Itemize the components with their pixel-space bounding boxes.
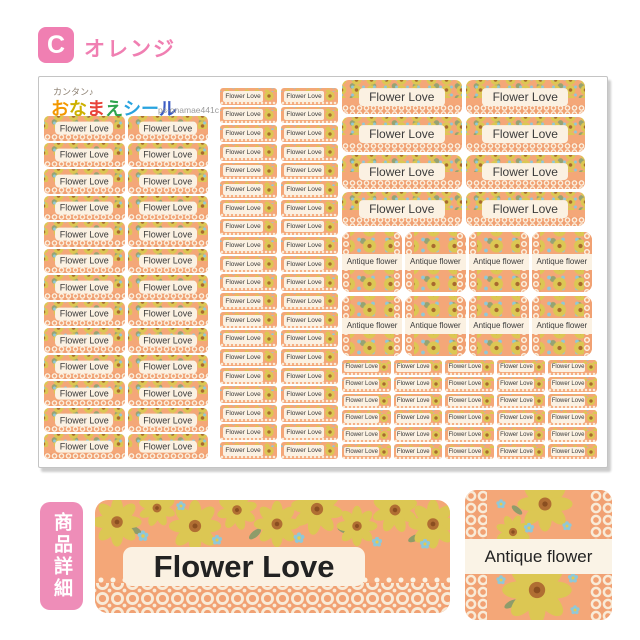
flower-icon xyxy=(380,414,388,422)
lace-band xyxy=(342,217,462,226)
name-sticker-small: Flower Love xyxy=(281,88,338,105)
sticker-label: Flower Love xyxy=(396,379,431,389)
name-sticker-mini: Flower Love xyxy=(497,377,546,392)
sticker-label: Flower Love xyxy=(223,389,263,400)
name-sticker-small: Flower Love xyxy=(220,163,277,180)
sticker-label: Antique flower xyxy=(532,254,592,270)
flower-icon xyxy=(264,241,274,251)
flower-icon xyxy=(264,371,274,381)
detail-sticker-antique-flower: Antique flower xyxy=(465,490,612,620)
name-sticker-small: Flower Love xyxy=(220,219,277,236)
sticker-block-antique: Antique flowerAntique flowerAntique flow… xyxy=(342,232,592,356)
flower-icon xyxy=(264,185,274,195)
floral-band-top xyxy=(477,296,520,318)
flower-icon xyxy=(483,363,491,371)
sticker-label: Flower Love xyxy=(223,91,263,102)
name-sticker-small: Flower Love xyxy=(220,144,277,161)
sticker-block-left: Flower LoveFlower LoveFlower LoveFlower … xyxy=(44,116,208,459)
name-sticker-mini: Flower Love xyxy=(497,360,546,375)
flower-icon xyxy=(264,408,274,418)
name-sticker-small: Flower Love xyxy=(281,386,338,403)
flower-icon xyxy=(325,203,335,213)
sticker-label: Flower Love xyxy=(55,281,113,294)
name-sticker-small: Flower Love xyxy=(281,163,338,180)
name-sticker-small: Flower Love xyxy=(220,405,277,422)
sticker-label: Flower Love xyxy=(499,363,534,373)
sticker-label: Flower Love xyxy=(284,371,324,382)
name-sticker-large: Flower Love xyxy=(466,192,586,226)
flower-icon xyxy=(264,315,274,325)
name-sticker-mini: Flower Love xyxy=(445,427,494,442)
sticker-label: Flower Love xyxy=(448,447,483,457)
sticker-label: Flower Love xyxy=(139,361,197,374)
floral-band-top xyxy=(350,232,393,254)
sticker-label: Flower Love xyxy=(551,396,586,406)
sticker-label: Flower Love xyxy=(139,334,197,347)
name-sticker-medium: Flower Love xyxy=(44,434,125,459)
sticker-label: Antique flower xyxy=(469,318,529,334)
name-sticker-medium: Flower Love xyxy=(128,222,209,247)
name-sticker-small: Flower Love xyxy=(281,349,338,366)
flower-icon xyxy=(264,278,274,288)
name-sticker-medium: Flower Love xyxy=(44,196,125,221)
floral-band-top xyxy=(414,296,457,318)
sticker-label: Flower Love xyxy=(55,148,113,161)
lace-band xyxy=(44,187,125,193)
flower-icon xyxy=(325,147,335,157)
sticker-label: Flower Love xyxy=(499,430,534,440)
lace-band xyxy=(128,400,209,406)
lace-band xyxy=(128,161,209,167)
sticker-label: Antique flower xyxy=(469,254,529,270)
name-sticker-small: Flower Love xyxy=(220,107,277,124)
lace-band xyxy=(466,105,586,114)
sticker-label: Flower Love xyxy=(448,363,483,373)
sticker-label: Flower Love xyxy=(223,240,263,251)
sticker-label: Flower Love xyxy=(284,221,324,232)
sticker-label: Flower Love xyxy=(551,447,586,457)
flower-icon xyxy=(535,397,543,405)
lace-band xyxy=(466,180,586,189)
sticker-label: Flower Love xyxy=(55,361,113,374)
name-sticker-large: Flower Love xyxy=(342,117,462,151)
lace-band xyxy=(128,134,209,140)
name-sticker-mini: Flower Love xyxy=(394,410,443,425)
flower-icon xyxy=(483,397,491,405)
name-sticker-medium: Flower Love xyxy=(128,275,209,300)
lace-band xyxy=(342,143,462,152)
flower-icon xyxy=(535,431,543,439)
sticker-label: Flower Love xyxy=(551,363,586,373)
name-sticker-medium: Flower Love xyxy=(44,302,125,327)
sticker-label: Flower Love xyxy=(223,165,263,176)
lace-band xyxy=(44,134,125,140)
sticker-label: Flower Love xyxy=(344,430,379,440)
sticker-label: Flower Love xyxy=(284,389,324,400)
name-sticker-small: Flower Love xyxy=(281,312,338,329)
name-sticker-small: Flower Love xyxy=(220,256,277,273)
name-sticker-medium: Flower Love xyxy=(128,116,209,141)
sticker-label: Flower Love xyxy=(396,413,431,423)
sticker-label: Antique flower xyxy=(342,254,402,270)
flower-icon xyxy=(432,380,440,388)
sticker-label: Flower Love xyxy=(139,414,197,427)
lace-band xyxy=(44,400,125,406)
name-sticker-medium: Flower Love xyxy=(44,169,125,194)
flower-icon xyxy=(264,110,274,120)
name-sticker-mini: Flower Love xyxy=(445,377,494,392)
name-sticker-small: Flower Love xyxy=(281,274,338,291)
name-sticker-small: Flower Love xyxy=(220,200,277,217)
name-sticker-small: Flower Love xyxy=(220,293,277,310)
floral-band-bottom xyxy=(350,270,393,292)
sticker-label: Flower Love xyxy=(499,413,534,423)
flower-icon xyxy=(264,390,274,400)
sticker-label: Antique flower xyxy=(342,318,402,334)
name-sticker-mini: Flower Love xyxy=(497,444,546,459)
sticker-label: Flower Love xyxy=(551,379,586,389)
name-sticker-medium: Flower Love xyxy=(44,408,125,433)
sticker-label: Flower Love xyxy=(223,408,263,419)
name-sticker-square: Antique flower xyxy=(469,232,529,292)
flower-icon xyxy=(325,110,335,120)
detail-sticker-text: Flower Love xyxy=(154,549,335,585)
name-sticker-mini: Flower Love xyxy=(394,394,443,409)
name-sticker-medium: Flower Love xyxy=(128,355,209,380)
lace-band xyxy=(44,240,125,246)
sticker-label: Flower Love xyxy=(223,203,263,214)
lace-band xyxy=(44,346,125,352)
lace-band xyxy=(44,426,125,432)
name-sticker-small: Flower Love xyxy=(220,312,277,329)
name-sticker-mini: Flower Love xyxy=(394,427,443,442)
name-sticker-medium: Flower Love xyxy=(44,249,125,274)
name-sticker-mini: Flower Love xyxy=(445,410,494,425)
sticker-label: Flower Love xyxy=(284,240,324,251)
sticker-label: Flower Love xyxy=(499,447,534,457)
flower-icon xyxy=(264,166,274,176)
sticker-label: Flower Love xyxy=(284,427,324,438)
floral-band-top xyxy=(540,296,583,318)
sticker-label: Flower Love xyxy=(448,396,483,406)
sticker-sheet-image: カンタン♪ おなまえシール ps-onamae441c Flower LoveF… xyxy=(38,76,608,468)
sticker-label: Flower Love xyxy=(551,430,586,440)
sticker-label: Flower Love xyxy=(55,202,113,215)
flower-icon xyxy=(264,147,274,157)
name-sticker-medium: Flower Love xyxy=(128,196,209,221)
name-sticker-medium: Flower Love xyxy=(44,222,125,247)
flower-icon xyxy=(483,431,491,439)
sticker-block-bottom-right: Flower LoveFlower LoveFlower LoveFlower … xyxy=(342,360,597,459)
name-sticker-small: Flower Love xyxy=(281,330,338,347)
flower-icon xyxy=(325,222,335,232)
name-sticker-mini: Flower Love xyxy=(548,360,597,375)
flower-icon xyxy=(535,448,543,456)
name-sticker-small: Flower Love xyxy=(220,181,277,198)
name-sticker-small: Flower Love xyxy=(220,88,277,105)
name-sticker-medium: Flower Love xyxy=(128,302,209,327)
lace-band xyxy=(128,240,209,246)
name-sticker-small: Flower Love xyxy=(220,349,277,366)
sticker-label: Flower Love xyxy=(284,165,324,176)
flower-icon xyxy=(325,427,335,437)
name-sticker-small: Flower Love xyxy=(281,405,338,422)
flower-icon xyxy=(587,431,595,439)
lace-band xyxy=(44,214,125,220)
sticker-label: Flower Love xyxy=(284,109,324,120)
flower-icon xyxy=(587,397,595,405)
detail-sticker-text: Antique flower xyxy=(485,547,593,567)
name-sticker-square: Antique flower xyxy=(342,232,402,292)
sticker-label: Flower Love xyxy=(499,396,534,406)
name-sticker-medium: Flower Love xyxy=(128,408,209,433)
sticker-label: Flower Love xyxy=(55,175,113,188)
flower-icon xyxy=(264,334,274,344)
lace-band xyxy=(128,187,209,193)
sticker-label: Flower Love xyxy=(223,296,263,307)
floral-band-bottom xyxy=(477,334,520,356)
product-code: ps-onamae441c xyxy=(158,105,219,115)
name-sticker-mini: Flower Love xyxy=(394,360,443,375)
name-sticker-mini: Flower Love xyxy=(394,377,443,392)
flower-icon xyxy=(432,431,440,439)
name-sticker-mini: Flower Love xyxy=(394,444,443,459)
sticker-label: Flower Love xyxy=(284,277,324,288)
name-sticker-small: Flower Love xyxy=(220,424,277,441)
flower-icon xyxy=(325,296,335,306)
sticker-label: Flower Love xyxy=(284,296,324,307)
lace-band xyxy=(128,267,209,273)
floral-band-bottom xyxy=(414,270,457,292)
sticker-label: Flower Love xyxy=(284,91,324,102)
flower-icon xyxy=(535,363,543,371)
sticker-label: Flower Love xyxy=(344,447,379,457)
sticker-label: Flower Love xyxy=(223,371,263,382)
name-sticker-medium: Flower Love xyxy=(44,328,125,353)
sticker-label: Flower Love xyxy=(139,228,197,241)
sticker-label: Flower Love xyxy=(344,413,379,423)
sticker-label: Flower Love xyxy=(551,413,586,423)
flower-icon xyxy=(432,414,440,422)
sticker-block-middle: Flower LoveFlower LoveFlower LoveFlower … xyxy=(220,88,338,459)
sticker-label: Flower Love xyxy=(482,125,568,143)
name-sticker-mini: Flower Love xyxy=(497,427,546,442)
flower-icon xyxy=(587,414,595,422)
flower-icon xyxy=(380,448,388,456)
sticker-label: Flower Love xyxy=(223,221,263,232)
name-sticker-medium: Flower Love xyxy=(44,275,125,300)
name-sticker-mini: Flower Love xyxy=(548,444,597,459)
flower-icon xyxy=(325,129,335,139)
name-sticker-large: Flower Love xyxy=(342,192,462,226)
name-sticker-square: Antique flower xyxy=(532,296,592,356)
name-sticker-small: Flower Love xyxy=(281,125,338,142)
sticker-label: Flower Love xyxy=(284,445,324,456)
name-sticker-mini: Flower Love xyxy=(445,394,494,409)
floral-band-bottom xyxy=(350,334,393,356)
sticker-label: Flower Love xyxy=(139,308,197,321)
flower-icon xyxy=(325,334,335,344)
sticker-label: Flower Love xyxy=(223,184,263,195)
lace-band xyxy=(128,320,209,326)
lace-band xyxy=(128,346,209,352)
sticker-label: Flower Love xyxy=(139,122,197,135)
sticker-label: Flower Love xyxy=(359,125,445,143)
flower-icon xyxy=(483,414,491,422)
flower-icon xyxy=(325,278,335,288)
name-sticker-large: Flower Love xyxy=(342,155,462,189)
flower-icon xyxy=(483,448,491,456)
sticker-label: Flower Love xyxy=(55,334,113,347)
lace-band xyxy=(466,217,586,226)
name-sticker-square: Antique flower xyxy=(342,296,402,356)
sticker-label: Flower Love xyxy=(55,228,113,241)
name-sticker-small: Flower Love xyxy=(220,368,277,385)
variant-color-name: オレンジ xyxy=(84,33,176,63)
name-sticker-mini: Flower Love xyxy=(445,360,494,375)
flower-icon xyxy=(380,397,388,405)
detail-sticker-label: Antique flower xyxy=(465,539,612,574)
sticker-label: Flower Love xyxy=(482,163,568,181)
name-sticker-medium: Flower Love xyxy=(128,249,209,274)
sticker-label: Flower Love xyxy=(223,315,263,326)
lace-band xyxy=(128,214,209,220)
sticker-label: Flower Love xyxy=(396,447,431,457)
sticker-label: Flower Love xyxy=(55,255,113,268)
flower-icon xyxy=(535,380,543,388)
name-sticker-mini: Flower Love xyxy=(497,410,546,425)
flower-icon xyxy=(325,390,335,400)
sticker-label: Flower Love xyxy=(284,184,324,195)
flower-icon xyxy=(380,363,388,371)
lace-band xyxy=(128,373,209,379)
flower-icon xyxy=(264,91,274,101)
sticker-label: Flower Love xyxy=(55,440,113,453)
name-sticker-medium: Flower Love xyxy=(128,328,209,353)
sticker-label: Flower Love xyxy=(359,200,445,218)
lace-band xyxy=(128,293,209,299)
sticker-label: Flower Love xyxy=(55,122,113,135)
sticker-label: Flower Love xyxy=(139,175,197,188)
floral-band-bottom xyxy=(414,334,457,356)
flower-icon xyxy=(264,296,274,306)
flower-icon xyxy=(483,380,491,388)
floral-band-top xyxy=(540,232,583,254)
name-sticker-medium: Flower Love xyxy=(44,355,125,380)
sticker-label: Flower Love xyxy=(223,352,263,363)
name-sticker-small: Flower Love xyxy=(281,237,338,254)
flower-icon xyxy=(380,380,388,388)
name-sticker-medium: Flower Love xyxy=(44,116,125,141)
product-details-label: 商品詳細 xyxy=(48,512,75,600)
flower-icon xyxy=(325,408,335,418)
detail-sticker-label: Flower Love xyxy=(123,547,364,585)
sticker-label: Antique flower xyxy=(405,254,465,270)
flower-icon xyxy=(325,91,335,101)
flower-icon xyxy=(587,448,595,456)
sticker-label: Flower Love xyxy=(359,88,445,106)
flower-icon xyxy=(432,448,440,456)
sticker-label: Flower Love xyxy=(139,202,197,215)
sticker-label: Flower Love xyxy=(344,363,379,373)
sticker-label: Flower Love xyxy=(139,281,197,294)
flower-icon xyxy=(325,352,335,362)
name-sticker-small: Flower Love xyxy=(281,144,338,161)
sticker-label: Flower Love xyxy=(284,408,324,419)
sticker-label: Flower Love xyxy=(448,413,483,423)
name-sticker-large: Flower Love xyxy=(342,80,462,114)
flower-icon xyxy=(535,414,543,422)
name-sticker-small: Flower Love xyxy=(220,125,277,142)
sticker-label: Flower Love xyxy=(284,147,324,158)
sticker-label: Flower Love xyxy=(284,203,324,214)
sticker-label: Flower Love xyxy=(223,259,263,270)
sticker-label: Flower Love xyxy=(223,445,263,456)
name-sticker-square: Antique flower xyxy=(469,296,529,356)
name-sticker-small: Flower Love xyxy=(281,293,338,310)
sticker-label: Antique flower xyxy=(405,318,465,334)
sticker-label: Flower Love xyxy=(139,440,197,453)
name-sticker-small: Flower Love xyxy=(281,442,338,459)
lace-band xyxy=(466,143,586,152)
sticker-label: Flower Love xyxy=(344,379,379,389)
flower-icon xyxy=(587,363,595,371)
sticker-label: Flower Love xyxy=(223,128,263,139)
lace-band xyxy=(342,105,462,114)
name-sticker-small: Flower Love xyxy=(220,237,277,254)
sticker-label: Flower Love xyxy=(284,128,324,139)
flower-icon xyxy=(380,431,388,439)
name-sticker-medium: Flower Love xyxy=(128,434,209,459)
floral-band-top xyxy=(350,296,393,318)
name-sticker-large: Flower Love xyxy=(466,80,586,114)
sticker-label: Flower Love xyxy=(396,396,431,406)
floral-band-top xyxy=(477,232,520,254)
flower-icon xyxy=(264,446,274,456)
flower-icon xyxy=(264,259,274,269)
sticker-label: Flower Love xyxy=(344,396,379,406)
name-sticker-square: Antique flower xyxy=(532,232,592,292)
sticker-label: Flower Love xyxy=(223,109,263,120)
sticker-label: Flower Love xyxy=(284,315,324,326)
flower-icon xyxy=(325,446,335,456)
flower-icon xyxy=(325,185,335,195)
name-sticker-mini: Flower Love xyxy=(342,410,391,425)
name-sticker-small: Flower Love xyxy=(220,330,277,347)
sticker-label: Flower Love xyxy=(396,363,431,373)
sticker-label: Flower Love xyxy=(284,352,324,363)
flower-icon xyxy=(264,203,274,213)
name-sticker-large: Flower Love xyxy=(466,117,586,151)
lace-band xyxy=(44,320,125,326)
lace-band xyxy=(44,293,125,299)
lace-band xyxy=(44,267,125,273)
name-sticker-mini: Flower Love xyxy=(548,410,597,425)
flower-icon xyxy=(264,427,274,437)
name-sticker-small: Flower Love xyxy=(281,107,338,124)
floral-band-bottom xyxy=(540,270,583,292)
sticker-label: Flower Love xyxy=(55,414,113,427)
sticker-label: Flower Love xyxy=(284,259,324,270)
sticker-label: Flower Love xyxy=(482,200,568,218)
sticker-label: Flower Love xyxy=(223,277,263,288)
name-sticker-medium: Flower Love xyxy=(128,169,209,194)
sticker-label: Flower Love xyxy=(482,88,568,106)
name-sticker-small: Flower Love xyxy=(281,424,338,441)
name-sticker-medium: Flower Love xyxy=(44,381,125,406)
detail-sticker-flower-love: Flower Love xyxy=(95,500,450,613)
name-sticker-mini: Flower Love xyxy=(445,444,494,459)
